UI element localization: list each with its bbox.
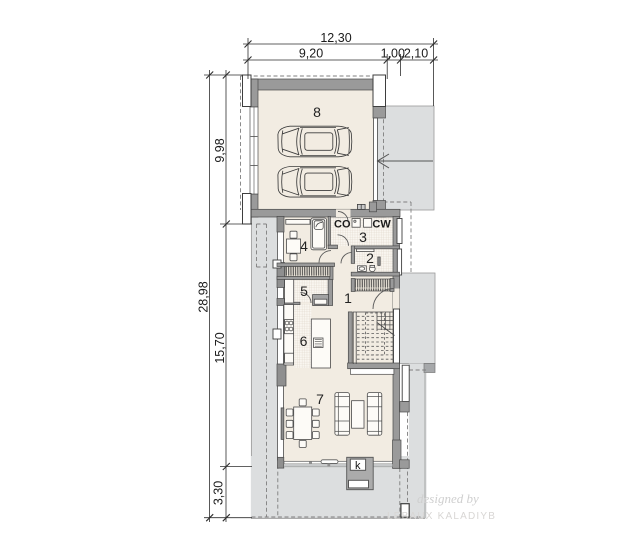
svg-text:9,98: 9,98 — [213, 138, 227, 162]
svg-text:3: 3 — [359, 229, 367, 245]
svg-text:6: 6 — [300, 333, 308, 349]
svg-text:4: 4 — [300, 238, 308, 254]
svg-text:2: 2 — [366, 250, 374, 266]
svg-text:28,98: 28,98 — [197, 281, 211, 312]
svg-text:15,70: 15,70 — [213, 332, 227, 363]
svg-text:2,10: 2,10 — [404, 46, 428, 60]
svg-text:LEBAUX KALADIYB: LEBAUX KALADIYB — [387, 511, 496, 522]
svg-text:7: 7 — [316, 391, 324, 407]
svg-text:CO: CO — [334, 218, 351, 230]
svg-text:1: 1 — [344, 290, 352, 306]
svg-text:8: 8 — [313, 104, 321, 120]
svg-text:designed by: designed by — [417, 491, 479, 506]
svg-text:5: 5 — [300, 283, 308, 299]
svg-text:CW: CW — [372, 218, 391, 230]
svg-text:k: k — [355, 460, 361, 472]
svg-text:12,30: 12,30 — [320, 31, 351, 45]
svg-text:1,00: 1,00 — [381, 46, 405, 60]
svg-text:3,30: 3,30 — [212, 481, 226, 505]
svg-text:9,20: 9,20 — [299, 46, 323, 60]
